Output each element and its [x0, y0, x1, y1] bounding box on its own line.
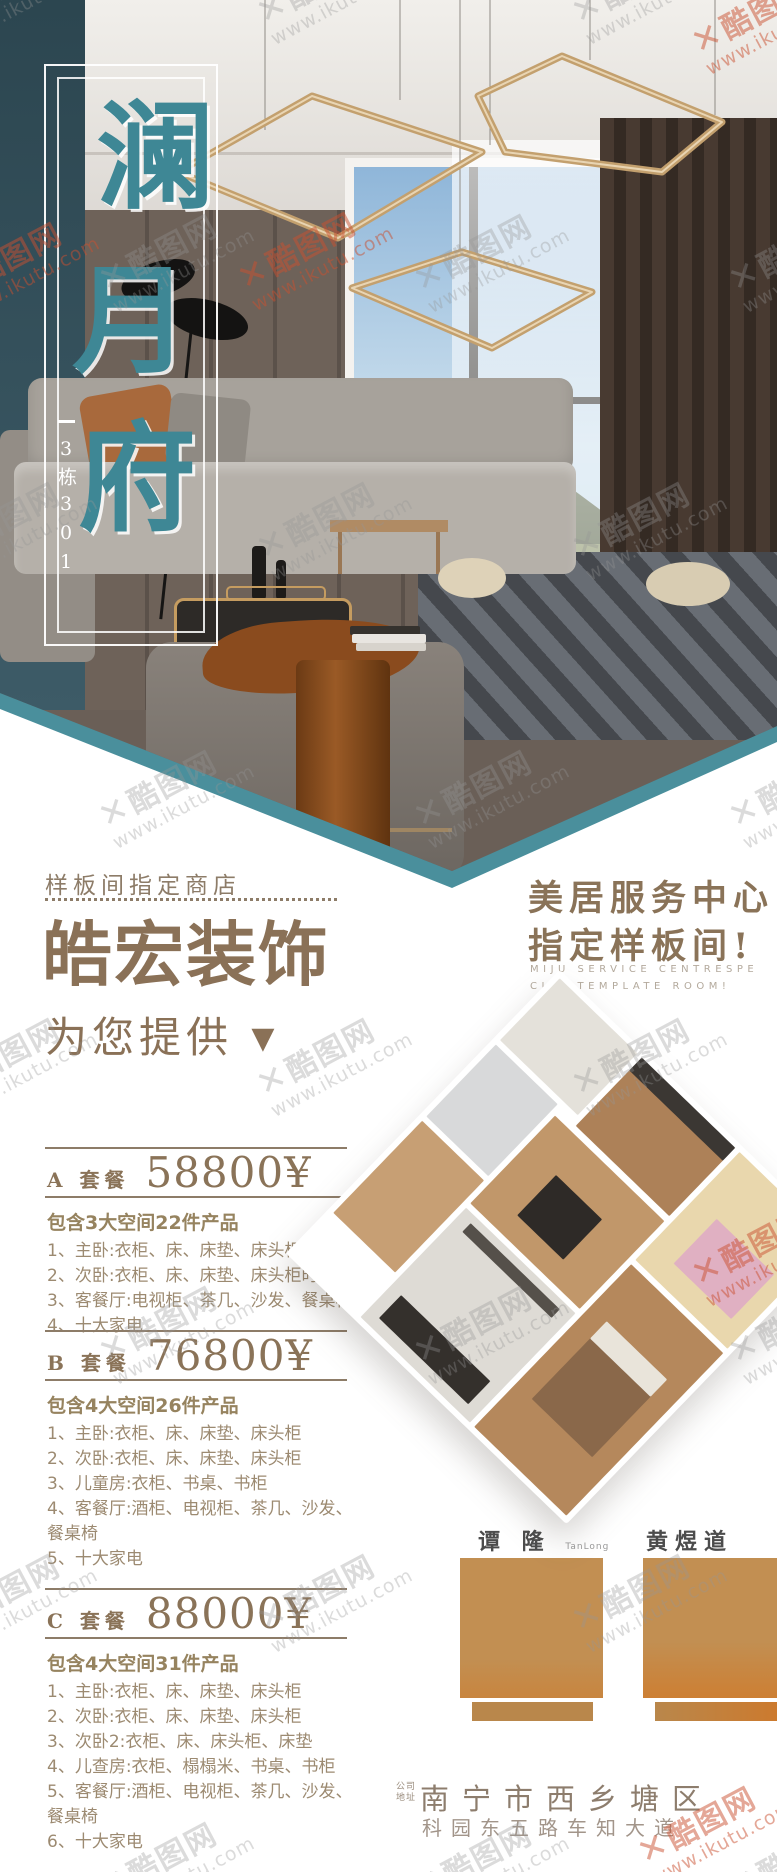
watermark-brand: 酷图网 [280, 1013, 381, 1089]
package-price: 76800¥ [147, 1335, 313, 1377]
package-tier: A 套餐 [47, 1164, 129, 1193]
dotted-divider [45, 898, 337, 901]
package-item-list: 1、主卧:衣柜、床、床垫、床头柜2、次卧:衣柜、床、床垫、床头柜3、次卧2:衣柜… [45, 1680, 367, 1855]
package-header: A 套餐 58800¥ [45, 1149, 367, 1196]
designer-name-text: 谭 隆 [478, 1529, 551, 1555]
side-table-leg [338, 532, 342, 574]
address-label: 公司 地址 [396, 1782, 416, 1804]
gold-tray [226, 586, 326, 601]
watermark-logo-icon: ✕ [722, 788, 766, 837]
portrait-base [655, 1702, 777, 1721]
address-label-line: 公司 [396, 1782, 416, 1793]
watermark-logo-icon: ✕ [92, 1860, 136, 1872]
package-price: 58800¥ [145, 1152, 311, 1194]
package-item: 1、主卧:衣柜、床、床垫、床头柜 [45, 1422, 367, 1447]
provide-text: 为您提供 [45, 1013, 233, 1062]
address-line2: 科园东五路车知大道 [422, 1812, 683, 1841]
package-item: 3、客餐厅:电视柜、茶几、沙发、餐桌椅 [45, 1289, 367, 1314]
package-item: 6、十大家电 [45, 1830, 367, 1855]
floor-cushion [646, 562, 730, 606]
watermark-logo-icon: ✕ [92, 788, 136, 837]
watermark: ✕酷图网www.ikutu.com [723, 1802, 777, 1872]
watermark-url: www.ikutu.com [740, 762, 777, 854]
package-item: 3、儿童房:衣柜、书桌、书柜 [45, 1472, 367, 1497]
provide-line: 为您提供 ▼ [45, 1004, 279, 1065]
portrait-base [472, 1702, 593, 1721]
package-tier: C 套餐 [47, 1605, 130, 1634]
package-item: 1、主卧:衣柜、床、床垫、床头柜 [45, 1680, 367, 1705]
designer-portrait [460, 1558, 603, 1698]
hero-title-char: 澜 [96, 98, 214, 216]
tagline: 样板间指定商店 [45, 866, 241, 900]
package-item: 5、十大家电 [45, 1547, 367, 1572]
address-label-line: 地址 [396, 1793, 416, 1804]
package-c: C 套餐 88000¥ 包含4大空间31件产品 1、主卧:衣柜、床、床垫、床头柜… [45, 1588, 367, 1855]
service-center-line2: 指定样板间! [528, 918, 754, 969]
service-center-line1: 美居服务中心 [528, 870, 774, 921]
poster: 澜 月 府 3栋301 样板间指定商店 皓宏装饰 为您提供 ▼ 美居服务中心 指… [0, 0, 777, 1872]
package-summary: 包含4大空间31件产品 [47, 1649, 367, 1676]
package-price: 88000¥ [146, 1593, 312, 1635]
watermark-url: www.ikutu.com [268, 1030, 417, 1122]
package-item: 2、次卧:衣柜、床、床垫、床头柜 [45, 1705, 367, 1730]
watermark-url: www.ikutu.com [740, 1834, 777, 1872]
title-dash [58, 420, 75, 423]
watermark-logo-icon: ✕ [722, 1860, 766, 1872]
side-table [330, 520, 448, 532]
book-stack [352, 634, 426, 643]
package-summary: 包含4大空间26件产品 [47, 1391, 367, 1418]
package-b: B 套餐 76800¥ 包含4大空间26件产品 1、主卧:衣柜、床、床垫、床头柜… [45, 1330, 367, 1572]
designer-latin: TanLong [565, 1542, 609, 1552]
brand-name: 皓宏装饰 [42, 918, 330, 992]
package-item: 4、儿查房:衣柜、榻榻米、书桌、书柜 [45, 1755, 367, 1780]
down-arrow-icon: ▼ [251, 1021, 279, 1056]
package-item: 2、次卧:衣柜、床、床垫、床头柜 [45, 1447, 367, 1472]
pendant-lights [160, 0, 777, 420]
package-header: C 套餐 88000¥ [45, 1590, 367, 1637]
package-item: 3、次卧2:衣柜、床、床头柜、床垫 [45, 1730, 367, 1755]
package-item-list: 1、主卧:衣柜、床、床垫、床头柜2、次卧:衣柜、床、床垫、床头柜3、儿童房:衣柜… [45, 1422, 367, 1572]
hero-title-char: 月 [72, 262, 190, 380]
watermark-brand: 酷图网 [752, 1817, 777, 1872]
package-header: B 套餐 76800¥ [45, 1332, 367, 1379]
package-tier: B 套餐 [47, 1347, 131, 1376]
side-table-leg [436, 532, 440, 574]
designer-name: 黄煜道 [646, 1524, 733, 1556]
designer-portrait [643, 1558, 777, 1698]
watermark-brand: 酷图网 [752, 745, 777, 821]
building-label: 3栋301 [53, 438, 80, 580]
watermark-logo-icon: ✕ [407, 1860, 451, 1872]
hero-title-char: 府 [78, 420, 196, 538]
package-item: 4、客餐厅:酒柜、电视柜、茶几、沙发、餐桌椅 [45, 1497, 367, 1547]
designer-name-text: 黄煜道 [646, 1529, 733, 1555]
book-stack [356, 643, 426, 651]
package-item: 5、客餐厅:酒柜、电视柜、茶几、沙发、餐桌椅 [45, 1780, 367, 1830]
pouf [438, 558, 506, 598]
designer-name: 谭 隆 TanLong [478, 1524, 609, 1556]
